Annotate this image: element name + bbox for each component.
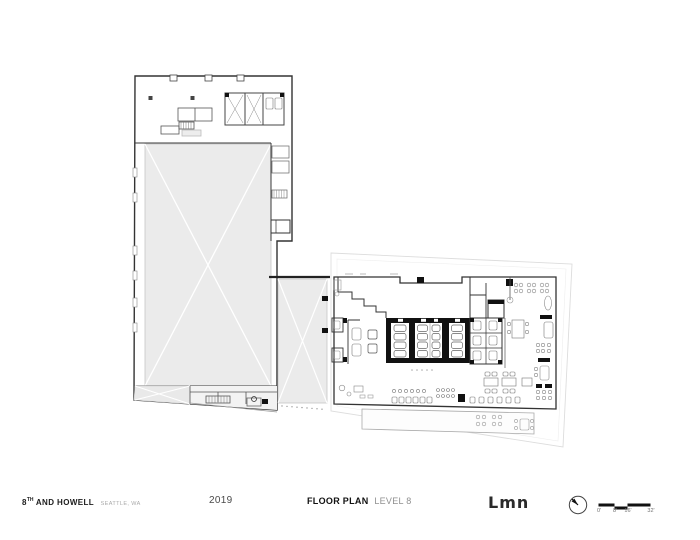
drawing-sheet: 8TH AND HOWELL SEATTLE, WA 2019 FLOOR PL… xyxy=(0,0,700,540)
south-service-cluster xyxy=(134,386,277,412)
tower-building xyxy=(332,274,556,434)
podium-building xyxy=(133,75,292,412)
floor-plan-drawing xyxy=(0,0,700,540)
connector-block xyxy=(269,277,330,410)
terrace xyxy=(362,409,534,434)
dotted-edge xyxy=(281,405,322,410)
